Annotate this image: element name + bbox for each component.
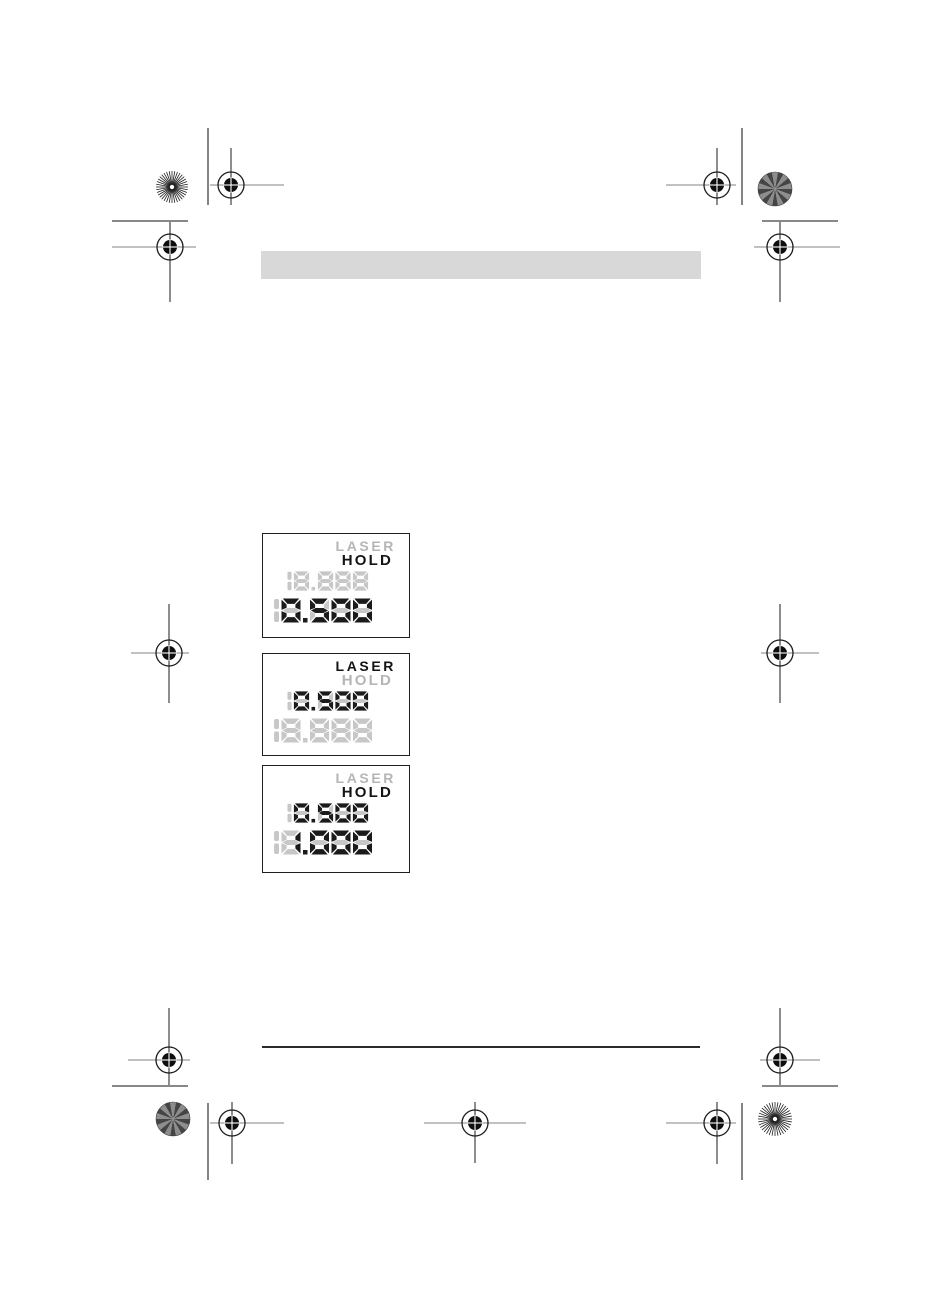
- lcd-display-2: LASER HOLD: [262, 653, 410, 756]
- hold-indicator: HOLD: [342, 672, 393, 689]
- starburst-calibration-icon: [156, 1102, 190, 1136]
- registration-mark-icon: [210, 1102, 284, 1164]
- lcd-bottom-measurement: [271, 598, 393, 625]
- starburst-calibration-icon: [758, 172, 792, 206]
- lcd-top-measurement: [285, 571, 388, 593]
- registration-mark-icon: [761, 604, 819, 703]
- manual-page: LASER HOLD LASER HOLD LASER HOLD: [0, 0, 950, 1308]
- registration-mark-icon: [760, 1008, 820, 1085]
- footer-rule: [262, 1046, 700, 1048]
- lcd-bottom-measurement: [271, 830, 393, 857]
- registration-mark-icon: [666, 148, 736, 205]
- registration-mark-icon: [754, 222, 840, 302]
- lcd-top-measurement: [285, 803, 388, 825]
- registration-mark-icon: [112, 222, 196, 302]
- registration-mark-icon: [210, 148, 284, 205]
- lcd-top-measurement: [285, 691, 388, 713]
- starburst-calibration-icon: [156, 171, 188, 203]
- registration-mark-icon: [131, 604, 189, 703]
- header-bar: [261, 251, 701, 279]
- hold-indicator: HOLD: [342, 552, 393, 569]
- registration-mark-icon: [666, 1102, 736, 1164]
- hold-indicator: HOLD: [342, 784, 393, 801]
- lcd-display-1: LASER HOLD: [262, 533, 410, 638]
- registration-mark-icon: [128, 1008, 190, 1085]
- lcd-bottom-measurement: [271, 718, 393, 745]
- starburst-calibration-icon: [758, 1102, 792, 1136]
- registration-mark-icon: [424, 1102, 526, 1163]
- lcd-display-3: LASER HOLD: [262, 765, 410, 873]
- print-marks-layer: [0, 0, 950, 1308]
